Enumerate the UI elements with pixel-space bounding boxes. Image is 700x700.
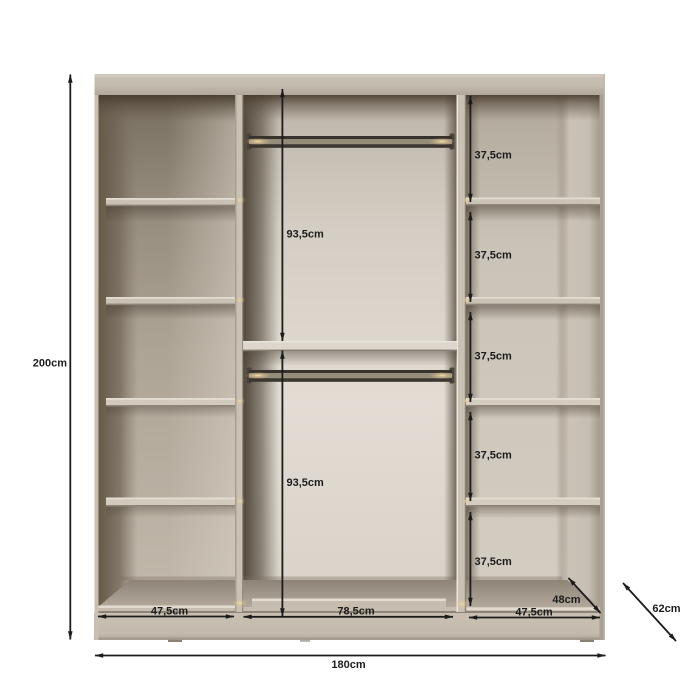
- svg-text:37,5cm: 37,5cm: [475, 150, 513, 162]
- svg-text:180cm: 180cm: [331, 659, 365, 671]
- svg-text:37,5cm: 37,5cm: [475, 351, 513, 363]
- svg-text:37,5cm: 37,5cm: [475, 450, 513, 462]
- svg-text:37,5cm: 37,5cm: [475, 250, 513, 262]
- svg-text:78,5cm: 78,5cm: [337, 606, 375, 618]
- svg-text:48cm: 48cm: [552, 594, 580, 606]
- svg-text:47,5cm: 47,5cm: [515, 607, 553, 619]
- svg-text:93,5cm: 93,5cm: [287, 477, 325, 489]
- svg-text:62cm: 62cm: [652, 603, 680, 615]
- svg-text:37,5cm: 37,5cm: [475, 556, 513, 568]
- svg-text:200cm: 200cm: [33, 358, 67, 370]
- svg-text:47,5cm: 47,5cm: [151, 606, 189, 618]
- svg-text:93,5cm: 93,5cm: [287, 229, 325, 241]
